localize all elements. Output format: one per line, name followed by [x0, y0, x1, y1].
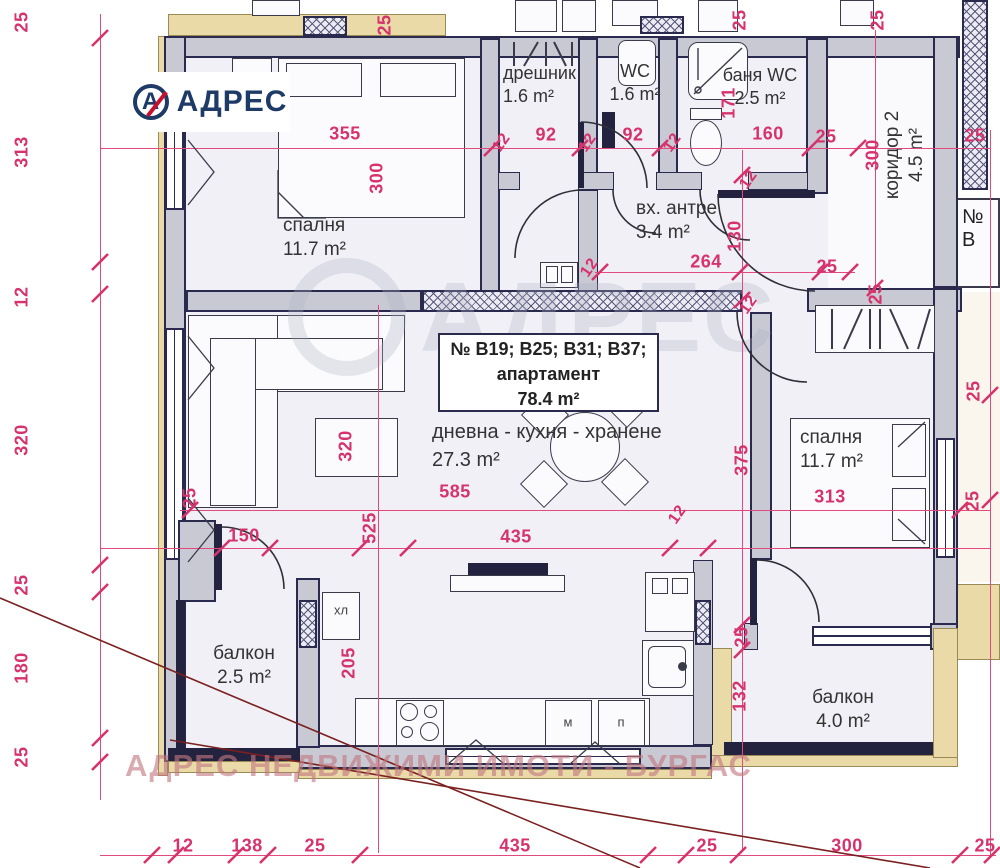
dim-label: 25 — [974, 836, 995, 857]
wall-seg — [498, 172, 520, 190]
wall-column — [640, 16, 684, 34]
room-name: дрешник — [503, 62, 576, 85]
logo-text: АДРЕС — [177, 85, 288, 119]
room-name: балкон — [198, 642, 290, 666]
dim-label: 25 — [732, 626, 753, 647]
cabinet-detail — [652, 578, 668, 594]
dim-label: 25 — [375, 14, 396, 35]
unit-numbers: № В19; В25; В31; В37; — [450, 339, 646, 359]
dim-label: 435 — [499, 836, 531, 857]
dim-label: 25 — [12, 746, 33, 767]
dishwasher-label: п — [617, 715, 624, 730]
dim-line — [990, 130, 991, 855]
room-name: спалня — [283, 214, 346, 238]
room-area: 27.3 m² — [432, 446, 662, 474]
dim-label: 205 — [339, 647, 360, 679]
dim-label: 525 — [360, 512, 381, 544]
room-label-corridor: коридор 2 4.5 m² — [881, 75, 929, 235]
dim-label: 300 — [367, 162, 388, 194]
dim-label: 171 — [719, 87, 740, 119]
dim-label: 585 — [439, 482, 471, 503]
dim-label: 92 — [535, 125, 556, 146]
room-area: 1.6 m² — [606, 83, 664, 106]
dim-line — [742, 150, 743, 850]
logo-a-icon: А — [133, 84, 169, 120]
dim-label: 375 — [732, 444, 753, 476]
sofa-cushions — [210, 338, 256, 506]
agency-logo: А АДРЕС — [130, 72, 290, 132]
dim-label: 160 — [752, 124, 784, 145]
burner — [401, 726, 413, 738]
wall-right-upper — [933, 36, 958, 288]
wall-seg — [656, 172, 702, 190]
dim-line — [100, 148, 990, 149]
wall-column — [695, 600, 711, 645]
washer-label: м — [564, 715, 573, 730]
wall-bedroom1-bottom — [186, 290, 422, 312]
room-area: 4.5 m² — [905, 75, 929, 235]
dim-label: 25 — [964, 126, 985, 147]
room-label-bedroom1: спалня 11.7 m² — [283, 214, 346, 262]
tv-console — [450, 575, 565, 592]
wall-bedroom2-left — [750, 312, 772, 560]
dim-label: 355 — [329, 124, 361, 145]
door-leaf-entrance — [718, 190, 815, 198]
dim-label: 12 — [12, 286, 33, 307]
wardrobe — [815, 305, 935, 353]
toilet — [690, 120, 722, 166]
dim-label: 264 — [690, 252, 722, 273]
room-label-balcony1: балкон 2.5 m² — [198, 642, 290, 690]
wc-toilet — [602, 112, 615, 148]
dim-label: 25 — [868, 9, 889, 30]
dim-line — [180, 510, 990, 511]
wall-column — [962, 0, 988, 190]
dim-label: 25 — [964, 380, 985, 401]
room-name: WC — [606, 60, 664, 83]
fridge-label: хл — [334, 603, 348, 618]
unit-area: 78.4 m² — [517, 389, 579, 409]
wall-bath-corridor — [806, 38, 828, 194]
window-balcony2 — [812, 626, 932, 646]
wall-balcony1-top — [178, 520, 216, 602]
watermark-bottom-text: АДРЕС НЕДВИЖИМИ ИМОТИ - БУРГАС — [125, 748, 765, 784]
neighbor-fixture — [562, 0, 596, 32]
pillow — [892, 424, 926, 477]
unit-info-box: № В19; В25; В31; В37; апартамент 78.4 m² — [438, 333, 659, 412]
tv — [468, 563, 548, 575]
cabinet-detail — [672, 578, 688, 594]
dim-label: 25 — [815, 127, 836, 148]
pillow — [892, 488, 926, 541]
balcony2-wall-right — [933, 628, 958, 758]
dim-label: 25 — [963, 490, 984, 511]
room-name: дневна - кухня - хранене — [432, 418, 662, 446]
dim-label: 25 — [12, 574, 33, 595]
dim-label: 25 — [696, 836, 717, 857]
dim-label: 25 — [816, 257, 837, 278]
dim-label: 320 — [12, 424, 33, 456]
door-leaf-balcony1 — [214, 524, 222, 590]
balcony1-railing-left — [176, 600, 185, 750]
room-name: вх. антре — [636, 197, 717, 221]
dim-label: 92 — [622, 125, 643, 146]
coffee-table — [315, 418, 398, 477]
dim-label: 25 — [180, 487, 201, 508]
neighbor-unit-label: № В — [962, 206, 1000, 252]
dim-label: 130 — [725, 220, 746, 252]
room-area: 11.7 m² — [283, 238, 346, 262]
wall-hatched-living-top — [422, 290, 742, 312]
dim-label: 300 — [831, 836, 863, 857]
door-leaf-balcony2 — [750, 558, 757, 625]
dim-line — [100, 14, 101, 800]
dim-label: 435 — [500, 527, 532, 548]
neighbor-fixture — [515, 0, 557, 32]
room-label-bedroom2: спалня 11.7 m² — [800, 426, 863, 474]
dim-label: 150 — [228, 526, 260, 547]
neighbor-fixture — [252, 0, 300, 16]
cabinet-detail — [561, 266, 573, 283]
wall-kitchen-right — [693, 560, 713, 745]
pillow — [286, 63, 362, 97]
faucet — [678, 662, 687, 671]
dim-label: 138 — [231, 836, 263, 857]
neighbor-room — [956, 292, 1000, 582]
room-area: 4.0 m² — [793, 710, 893, 734]
dim-line — [100, 548, 990, 549]
room-label-wc: WC 1.6 m² — [606, 60, 664, 106]
unit-type: апартамент — [497, 364, 601, 384]
dim-label: 313 — [12, 136, 33, 168]
room-area: 1.6 m² — [503, 85, 576, 108]
room-name: баня WC — [712, 64, 808, 87]
room-area: 3.4 m² — [636, 221, 717, 245]
wall-column — [299, 600, 317, 648]
dim-label: 300 — [863, 139, 884, 171]
dim-label: 12 — [172, 836, 193, 857]
pillow — [380, 63, 456, 97]
dim-label: 313 — [814, 487, 846, 508]
wall-bedroom1-right — [480, 38, 500, 312]
wall-column — [303, 16, 347, 36]
room-label-closet: дрешник 1.6 m² — [503, 62, 576, 108]
room-label-balcony2: балкон 4.0 m² — [793, 686, 893, 734]
room-area: 11.7 m² — [800, 450, 863, 474]
dim-label: 25 — [12, 11, 33, 32]
room-label-entry: вх. антре 3.4 m² — [636, 197, 717, 245]
room-area: 2.5 m² — [198, 666, 290, 690]
room-name: балкон — [793, 686, 893, 710]
room-name: спалня — [800, 426, 863, 450]
room-label-living: дневна - кухня - хранене 27.3 m² — [432, 418, 662, 474]
cabinet-detail — [546, 266, 558, 283]
dim-label: 320 — [336, 430, 357, 462]
window-bedroom2 — [936, 438, 955, 558]
burner — [420, 722, 439, 741]
dim-label: 25 — [304, 836, 325, 857]
dim-label: 132 — [730, 680, 751, 712]
burner — [400, 703, 418, 721]
room-name: коридор 2 — [881, 75, 905, 235]
burner — [424, 705, 437, 718]
dim-label: 25 — [866, 283, 887, 304]
floor-plan: № В — [0, 0, 1000, 868]
dim-label: 180 — [12, 652, 33, 684]
dim-label: 25 — [730, 9, 751, 30]
